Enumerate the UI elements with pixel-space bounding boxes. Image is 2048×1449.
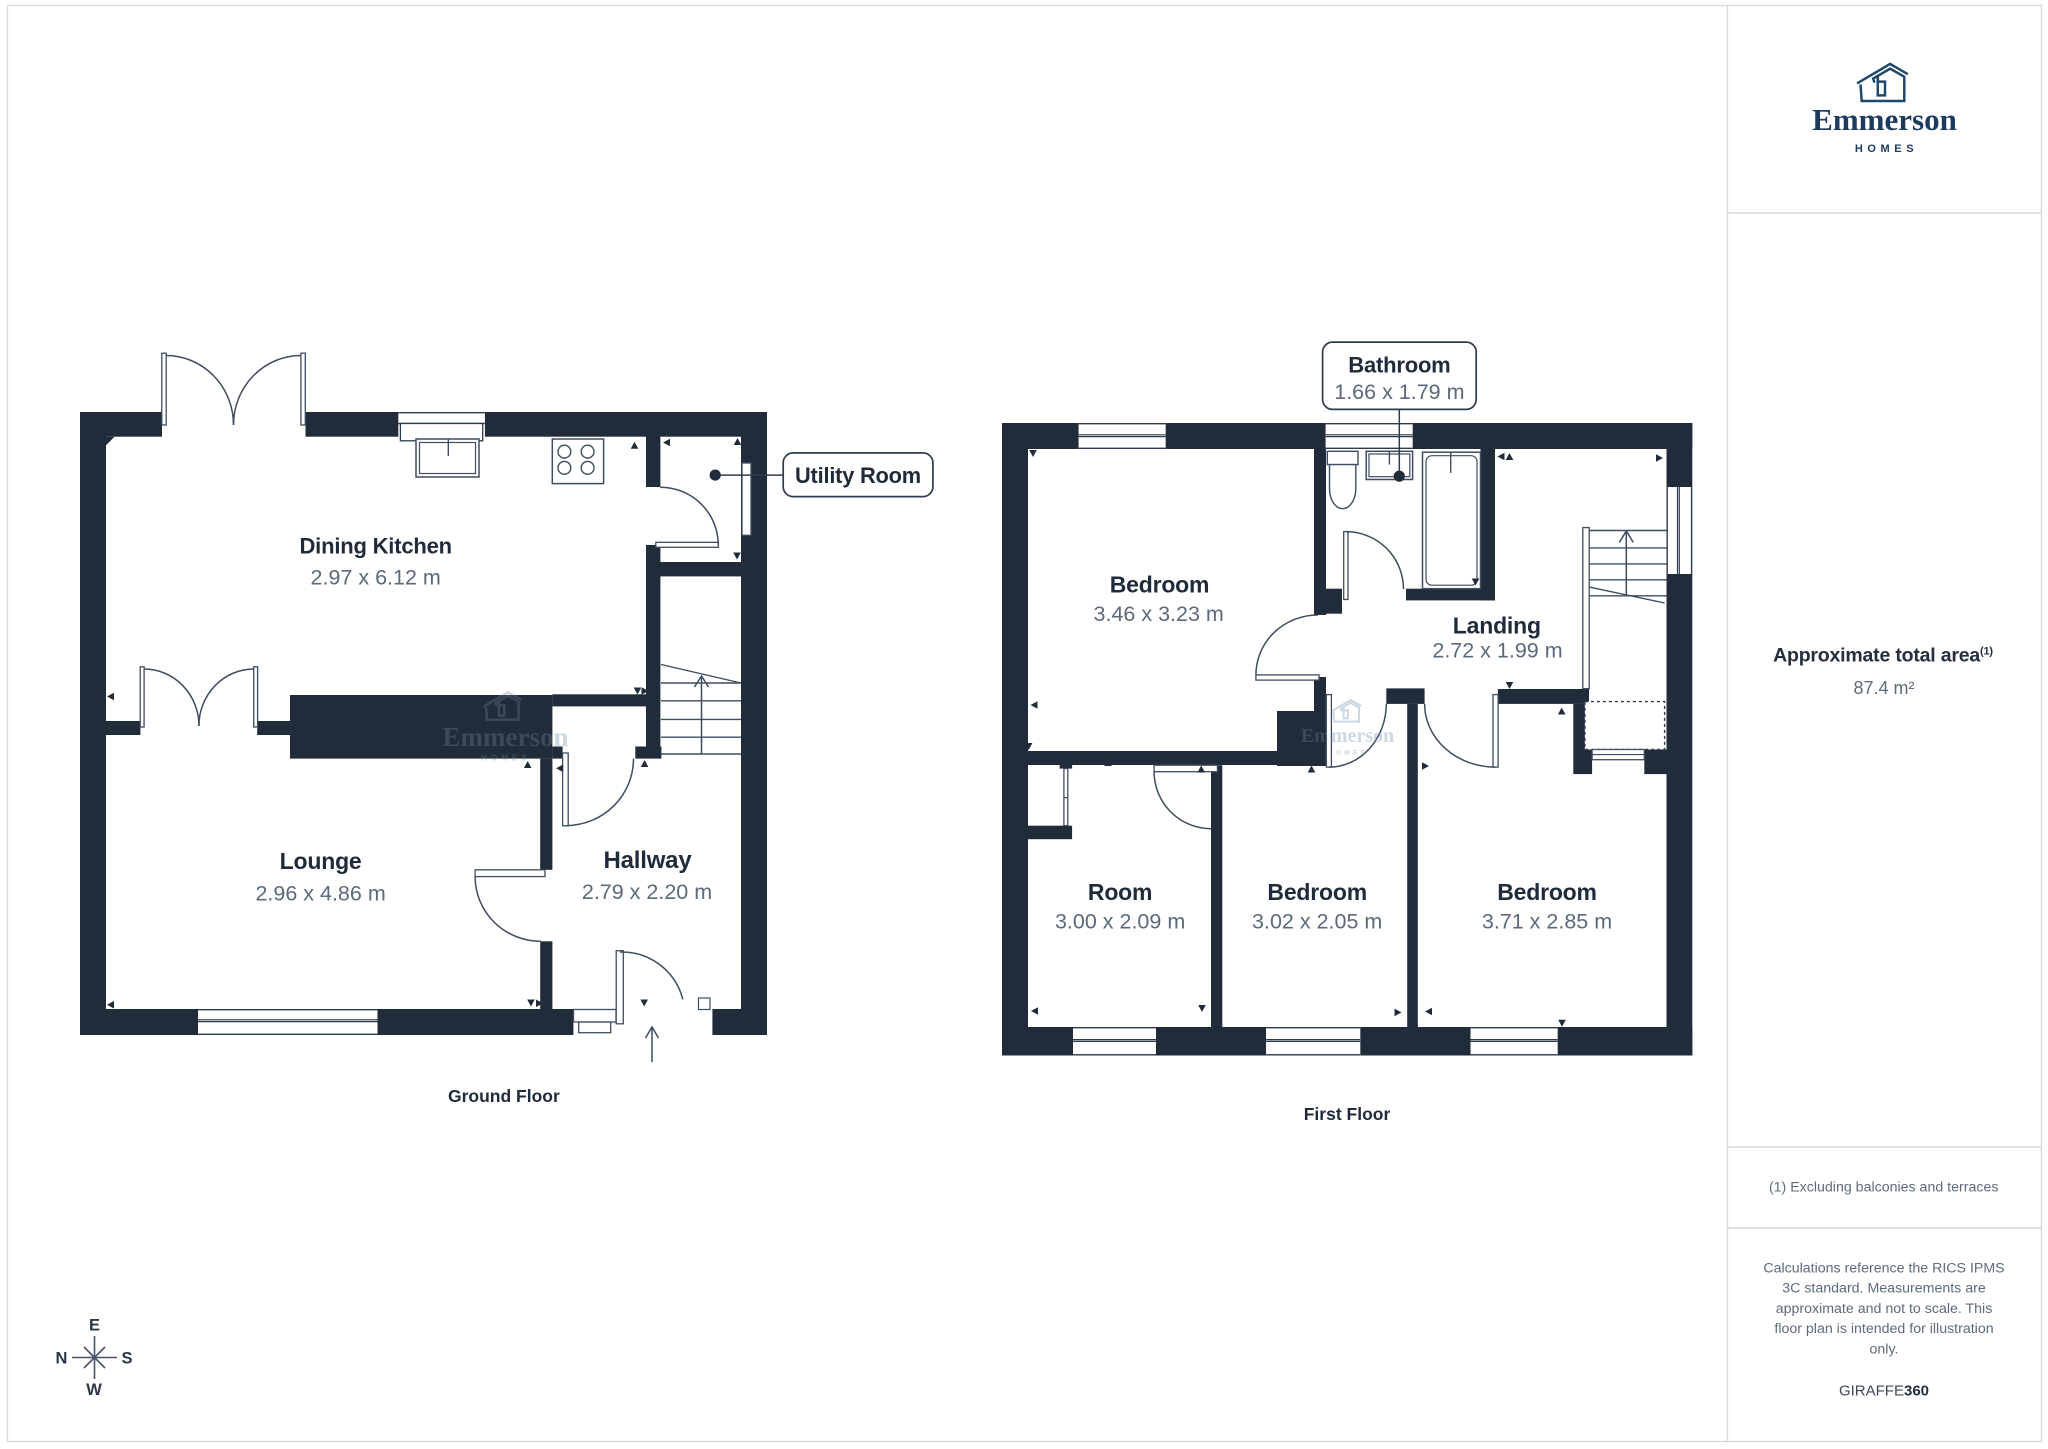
- svg-text:2.96 x 4.86 m: 2.96 x 4.86 m: [255, 882, 385, 906]
- svg-text:Room: Room: [1088, 879, 1152, 905]
- svg-text:2.72 x 1.99 m: 2.72 x 1.99 m: [1432, 639, 1562, 663]
- svg-text:Utility Room: Utility Room: [795, 463, 921, 488]
- svg-text:approximate and not to scale.: approximate and not to scale. This: [1776, 1301, 1993, 1317]
- svg-text:Landing: Landing: [1453, 613, 1541, 639]
- svg-text:Emmerson: Emmerson: [1812, 102, 1957, 137]
- svg-text:only.: only.: [1870, 1341, 1899, 1357]
- svg-text:Approximate total area(1): Approximate total area(1): [1773, 645, 1993, 667]
- svg-text:Bathroom: Bathroom: [1348, 353, 1450, 378]
- svg-text:87.4 m²: 87.4 m²: [1853, 678, 1914, 698]
- svg-text:HOMES: HOMES: [1855, 143, 1918, 155]
- svg-text:S: S: [121, 1350, 132, 1368]
- svg-text:3.00 x 2.09 m: 3.00 x 2.09 m: [1055, 910, 1185, 934]
- svg-text:Hallway: Hallway: [604, 847, 693, 874]
- svg-text:HOMES: HOMES: [1328, 750, 1368, 757]
- svg-text:3.71 x 2.85 m: 3.71 x 2.85 m: [1482, 910, 1612, 934]
- svg-text:W: W: [86, 1381, 102, 1399]
- svg-text:3.02 x 2.05 m: 3.02 x 2.05 m: [1252, 910, 1382, 934]
- svg-text:Calculations reference the RIC: Calculations reference the RICS IPMS: [1763, 1261, 2004, 1277]
- svg-text:Lounge: Lounge: [280, 848, 362, 874]
- svg-text:Ground Floor: Ground Floor: [448, 1086, 560, 1106]
- svg-text:2.97 x 6.12 m: 2.97 x 6.12 m: [311, 566, 441, 590]
- svg-text:Emmerson: Emmerson: [443, 722, 569, 752]
- svg-text:1.66 x 1.79 m: 1.66 x 1.79 m: [1334, 380, 1464, 404]
- svg-text:2.79 x 2.20 m: 2.79 x 2.20 m: [582, 880, 712, 904]
- svg-text:(1) Excluding balconies and te: (1) Excluding balconies and terraces: [1769, 1180, 1999, 1196]
- svg-text:Bedroom: Bedroom: [1497, 879, 1597, 905]
- svg-text:N: N: [56, 1350, 68, 1368]
- svg-text:floor plan is intended for ill: floor plan is intended for illustration: [1774, 1321, 1993, 1337]
- svg-text:Dining Kitchen: Dining Kitchen: [299, 534, 451, 559]
- svg-text:Bedroom: Bedroom: [1267, 879, 1367, 905]
- svg-text:3.46 x 3.23 m: 3.46 x 3.23 m: [1094, 602, 1224, 626]
- svg-text:E: E: [89, 1317, 100, 1335]
- svg-text:Bedroom: Bedroom: [1110, 572, 1210, 598]
- svg-text:Emmerson: Emmerson: [1301, 725, 1394, 747]
- svg-text:GIRAFFE360: GIRAFFE360: [1839, 1383, 1929, 1400]
- svg-text:First Floor: First Floor: [1304, 1104, 1391, 1124]
- svg-text:HOMES: HOMES: [481, 754, 530, 763]
- svg-text:3C standard. Measurements are: 3C standard. Measurements are: [1782, 1281, 1986, 1297]
